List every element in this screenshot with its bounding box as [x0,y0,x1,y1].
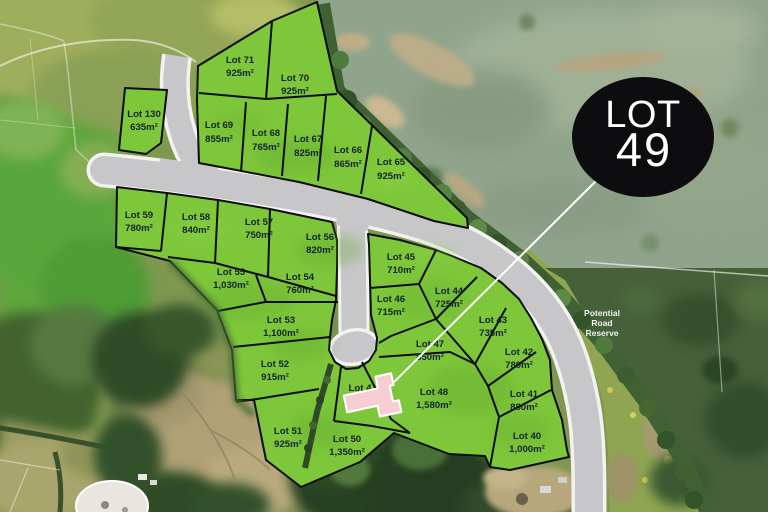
svg-text:Lot 69: Lot 69 [205,120,233,131]
svg-text:760m²: 760m² [286,285,314,296]
svg-text:Lot 50: Lot 50 [333,434,361,445]
svg-text:735m²: 735m² [479,328,507,339]
svg-text:Lot 40: Lot 40 [513,431,541,442]
svg-text:635m²: 635m² [130,122,158,133]
svg-text:Lot 58: Lot 58 [182,212,211,223]
svg-text:Lot 55: Lot 55 [217,267,246,278]
svg-text:765m²: 765m² [252,142,280,153]
svg-text:Lot 52: Lot 52 [261,359,289,370]
svg-text:Lot 41: Lot 41 [510,389,539,400]
svg-text:820m²: 820m² [306,245,334,256]
svg-text:715m²: 715m² [377,307,405,318]
svg-text:825m²: 825m² [294,148,322,159]
svg-text:Lot 65: Lot 65 [377,157,406,168]
svg-text:Lot 57: Lot 57 [245,217,273,228]
svg-text:855m²: 855m² [205,134,233,145]
svg-text:Lot 42: Lot 42 [505,347,533,358]
svg-text:Lot 67: Lot 67 [294,134,322,145]
svg-text:Lot 53: Lot 53 [267,315,295,326]
svg-text:925m²: 925m² [377,171,405,182]
svg-text:Lot 71: Lot 71 [226,55,255,66]
svg-text:865m²: 865m² [334,159,362,170]
svg-text:Potential: Potential [584,308,620,318]
svg-text:1,580m²: 1,580m² [416,400,452,411]
svg-text:Lot 43: Lot 43 [479,315,507,326]
svg-text:Lot 45: Lot 45 [387,252,416,263]
svg-text:925m²: 925m² [281,86,309,97]
svg-text:1,000m²: 1,000m² [509,444,545,455]
svg-text:780m²: 780m² [505,360,533,371]
svg-text:Lot 56: Lot 56 [306,232,334,243]
svg-text:49: 49 [616,123,672,176]
svg-text:725m²: 725m² [435,299,463,310]
svg-text:710m²: 710m² [387,265,415,276]
svg-text:Road: Road [591,318,612,328]
svg-text:925m²: 925m² [274,439,302,450]
svg-text:Lot 66: Lot 66 [334,145,362,156]
svg-text:915m²: 915m² [261,372,289,383]
svg-text:750m²: 750m² [245,230,273,241]
svg-text:Lot 70: Lot 70 [281,73,309,84]
svg-text:1,350m²: 1,350m² [329,447,365,458]
svg-text:Reserve: Reserve [585,328,618,338]
svg-text:Lot 48: Lot 48 [420,387,449,398]
svg-text:Lot 59: Lot 59 [125,210,153,221]
svg-text:Lot 47: Lot 47 [416,339,444,350]
svg-text:Lot 54: Lot 54 [286,272,315,283]
svg-text:Lot 51: Lot 51 [274,426,303,437]
svg-text:Lot 130: Lot 130 [127,109,161,120]
svg-text:850m²: 850m² [416,352,444,363]
svg-text:Lot 68: Lot 68 [252,128,281,139]
svg-text:925m²: 925m² [226,68,254,79]
svg-text:Lot 44: Lot 44 [435,286,464,297]
svg-text:1,030m²: 1,030m² [213,280,249,291]
svg-text:1,100m²: 1,100m² [263,328,299,339]
svg-text:880m²: 880m² [510,402,538,413]
svg-text:780m²: 780m² [125,223,153,234]
svg-text:840m²: 840m² [182,225,210,236]
svg-text:Lot 46: Lot 46 [377,294,405,305]
